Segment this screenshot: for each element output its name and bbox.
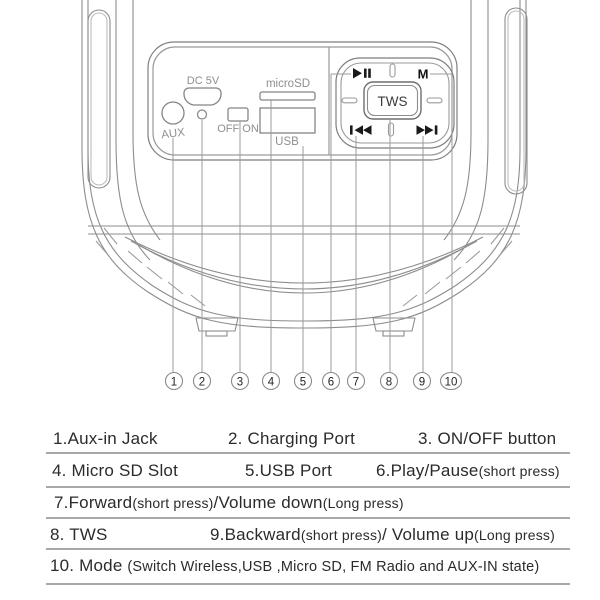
- legend-item-6: 6.Play/Pause(short press): [376, 461, 560, 481]
- legend-divider: [46, 452, 570, 454]
- legend-divider: [46, 548, 570, 550]
- manual-page: AUX DC 5V OFF ON microSD USB TWS: [0, 0, 600, 600]
- legend-item-2: 2. Charging Port: [228, 429, 355, 449]
- legend-divider: [46, 583, 570, 585]
- legend-item-9: 9.Backward(short press)/ Volume up(Long …: [210, 525, 555, 545]
- legend-item-9-main2: / Volume up: [382, 525, 474, 544]
- legend-item-6-main: 6.Play/Pause: [376, 461, 479, 480]
- legend-item-10-note: (Switch Wireless,USB ,Micro SD, FM Radio…: [127, 559, 539, 575]
- legend-divider: [46, 486, 570, 488]
- legend-item-9-note2: (Long press): [474, 527, 555, 543]
- legend-item-3: 3. ON/OFF button: [418, 429, 556, 449]
- legend-item-10: 10. Mode (Switch Wireless,USB ,Micro SD,…: [50, 556, 539, 576]
- legend-item-7-note2: (Long press): [323, 495, 404, 511]
- legend-item-6-note: (short press): [479, 463, 560, 479]
- legend-divider: [46, 517, 570, 519]
- legend-item-9-main: 9.Backward: [210, 525, 301, 544]
- legend-item-7-main: 7.Forward: [54, 493, 132, 512]
- legend-item-9-note1: (short press): [301, 527, 382, 543]
- legend: 1.Aux-in Jack 2. Charging Port 3. ON/OFF…: [0, 0, 600, 600]
- legend-item-5: 5.USB Port: [245, 461, 332, 481]
- legend-item-4: 4. Micro SD Slot: [52, 461, 178, 481]
- legend-item-7-note1: (short press): [132, 495, 213, 511]
- legend-item-8: 8. TWS: [50, 525, 108, 545]
- legend-item-7-main2: /Volume down: [214, 493, 323, 512]
- legend-item-1: 1.Aux-in Jack: [53, 429, 158, 449]
- legend-item-10-main: 10. Mode: [50, 556, 127, 575]
- legend-item-7: 7.Forward(short press)/Volume down(Long …: [54, 493, 404, 513]
